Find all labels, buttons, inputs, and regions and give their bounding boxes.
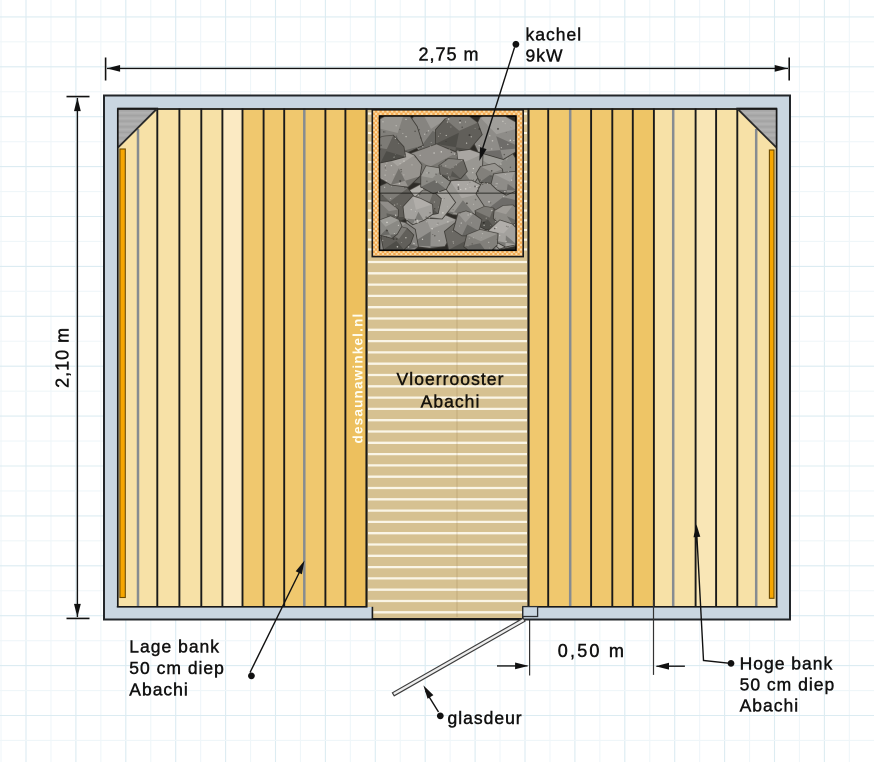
svg-text:50 cm diep: 50 cm diep xyxy=(740,675,836,695)
svg-text:Hoge bank: Hoge bank xyxy=(740,654,834,674)
svg-text:2,75 m: 2,75 m xyxy=(418,45,479,65)
svg-text:kachel: kachel xyxy=(526,24,583,44)
svg-text:2,10 m: 2,10 m xyxy=(53,327,73,388)
svg-text:Abachi: Abachi xyxy=(129,680,189,700)
svg-text:50 cm diep: 50 cm diep xyxy=(129,658,225,678)
svg-text:0,50 m: 0,50 m xyxy=(558,641,626,661)
svg-text:desaunawinkel.nl: desaunawinkel.nl xyxy=(351,313,366,444)
svg-text:Lage bank: Lage bank xyxy=(129,637,220,657)
svg-text:Abachi: Abachi xyxy=(740,696,800,716)
svg-text:glasdeur: glasdeur xyxy=(448,708,523,728)
svg-text:Abachi: Abachi xyxy=(421,392,481,412)
svg-text:9kW: 9kW xyxy=(526,45,564,65)
svg-text:Vloerrooster: Vloerrooster xyxy=(397,369,505,389)
